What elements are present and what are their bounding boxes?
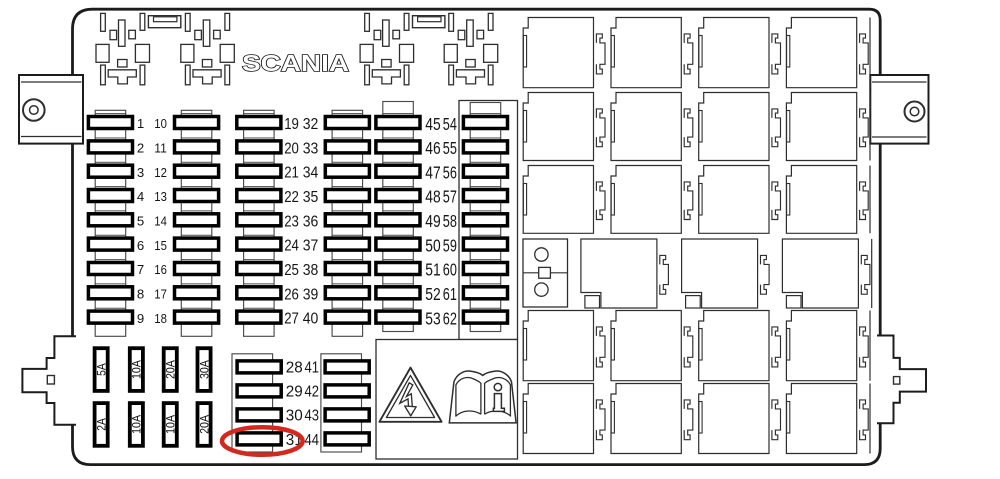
svg-text:37: 37 — [303, 238, 319, 255]
svg-text:34: 34 — [303, 165, 319, 182]
svg-text:61: 61 — [443, 284, 457, 304]
svg-text:57: 57 — [443, 187, 457, 207]
svg-text:38: 38 — [303, 262, 319, 279]
svg-text:10: 10 — [154, 116, 167, 131]
svg-text:60: 60 — [443, 260, 457, 280]
svg-text:40: 40 — [303, 311, 319, 328]
svg-text:20: 20 — [284, 140, 299, 157]
svg-text:10A: 10A — [164, 415, 178, 434]
svg-text:7: 7 — [137, 262, 144, 277]
svg-text:6: 6 — [137, 238, 144, 253]
svg-text:30: 30 — [286, 408, 303, 425]
svg-text:10A: 10A — [130, 360, 144, 379]
svg-text:10A: 10A — [130, 415, 144, 434]
svg-text:22: 22 — [284, 189, 299, 206]
svg-text:45: 45 — [425, 114, 440, 134]
svg-text:5: 5 — [137, 214, 144, 229]
svg-text:21: 21 — [284, 165, 299, 182]
svg-text:56: 56 — [443, 162, 457, 182]
svg-text:28: 28 — [286, 360, 303, 377]
svg-text:30A: 30A — [197, 360, 211, 379]
svg-text:5A: 5A — [94, 363, 108, 376]
svg-text:55: 55 — [443, 138, 457, 158]
svg-text:8: 8 — [137, 287, 144, 302]
svg-text:17: 17 — [154, 287, 167, 302]
svg-text:50: 50 — [425, 235, 440, 255]
svg-text:54: 54 — [443, 114, 457, 134]
svg-text:9: 9 — [137, 311, 144, 326]
svg-text:43: 43 — [305, 408, 320, 425]
svg-text:48: 48 — [425, 187, 440, 207]
svg-text:18: 18 — [154, 311, 167, 326]
svg-text:16: 16 — [154, 262, 167, 277]
svg-text:11: 11 — [154, 141, 167, 156]
svg-text:62: 62 — [443, 308, 457, 328]
svg-text:24: 24 — [284, 238, 299, 255]
svg-text:23: 23 — [284, 213, 299, 230]
svg-text:46: 46 — [425, 138, 440, 158]
svg-text:20A: 20A — [163, 360, 177, 379]
svg-text:20A: 20A — [197, 415, 211, 434]
svg-text:26: 26 — [284, 286, 299, 303]
svg-text:49: 49 — [425, 211, 440, 231]
svg-text:2: 2 — [137, 141, 144, 156]
svg-text:32: 32 — [303, 116, 319, 133]
svg-text:58: 58 — [443, 211, 457, 231]
svg-text:15: 15 — [154, 238, 167, 253]
svg-text:SCANIA: SCANIA — [242, 50, 349, 76]
svg-text:36: 36 — [303, 213, 319, 230]
svg-text:35: 35 — [303, 189, 319, 206]
svg-text:27: 27 — [284, 311, 299, 328]
svg-text:52: 52 — [425, 284, 440, 304]
svg-text:42: 42 — [305, 384, 320, 401]
svg-text:14: 14 — [154, 214, 167, 229]
svg-text:19: 19 — [284, 116, 299, 133]
svg-text:41: 41 — [305, 360, 320, 377]
svg-text:39: 39 — [303, 286, 319, 303]
svg-text:59: 59 — [443, 235, 457, 255]
svg-text:4: 4 — [137, 189, 144, 204]
svg-text:3: 3 — [137, 165, 144, 180]
svg-text:13: 13 — [154, 189, 167, 204]
svg-text:12: 12 — [154, 165, 167, 180]
svg-text:44: 44 — [305, 432, 320, 449]
svg-text:47: 47 — [425, 162, 440, 182]
svg-text:51: 51 — [425, 260, 440, 280]
svg-text:33: 33 — [303, 140, 319, 157]
svg-text:2A: 2A — [95, 418, 109, 431]
svg-text:29: 29 — [286, 384, 303, 401]
svg-text:25: 25 — [284, 262, 299, 279]
svg-text:53: 53 — [425, 308, 440, 328]
svg-text:1: 1 — [137, 116, 144, 131]
